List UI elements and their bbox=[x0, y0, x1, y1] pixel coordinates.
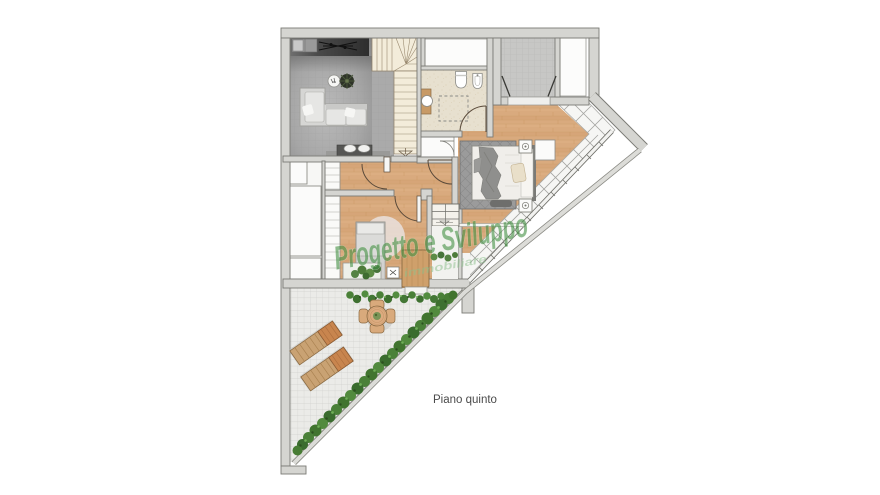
svg-text:Piano quinto: Piano quinto bbox=[433, 394, 497, 406]
